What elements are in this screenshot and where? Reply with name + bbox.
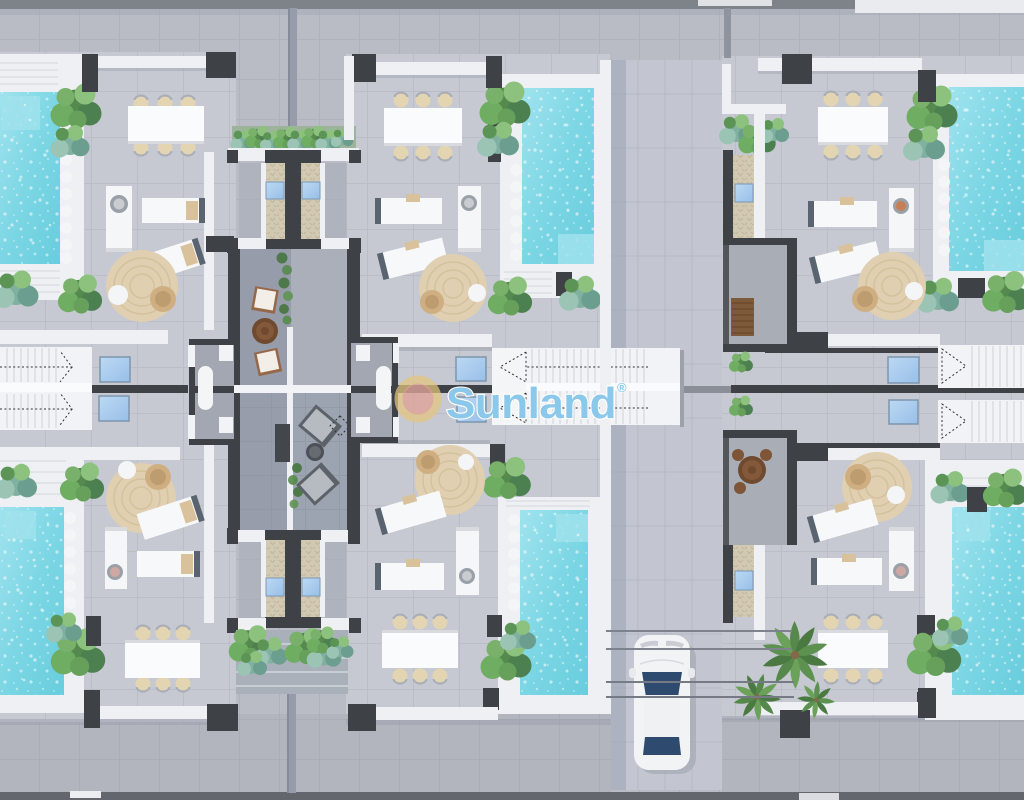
svg-text:®: ® [617, 380, 627, 395]
svg-text:Sunland: Sunland [446, 379, 616, 428]
